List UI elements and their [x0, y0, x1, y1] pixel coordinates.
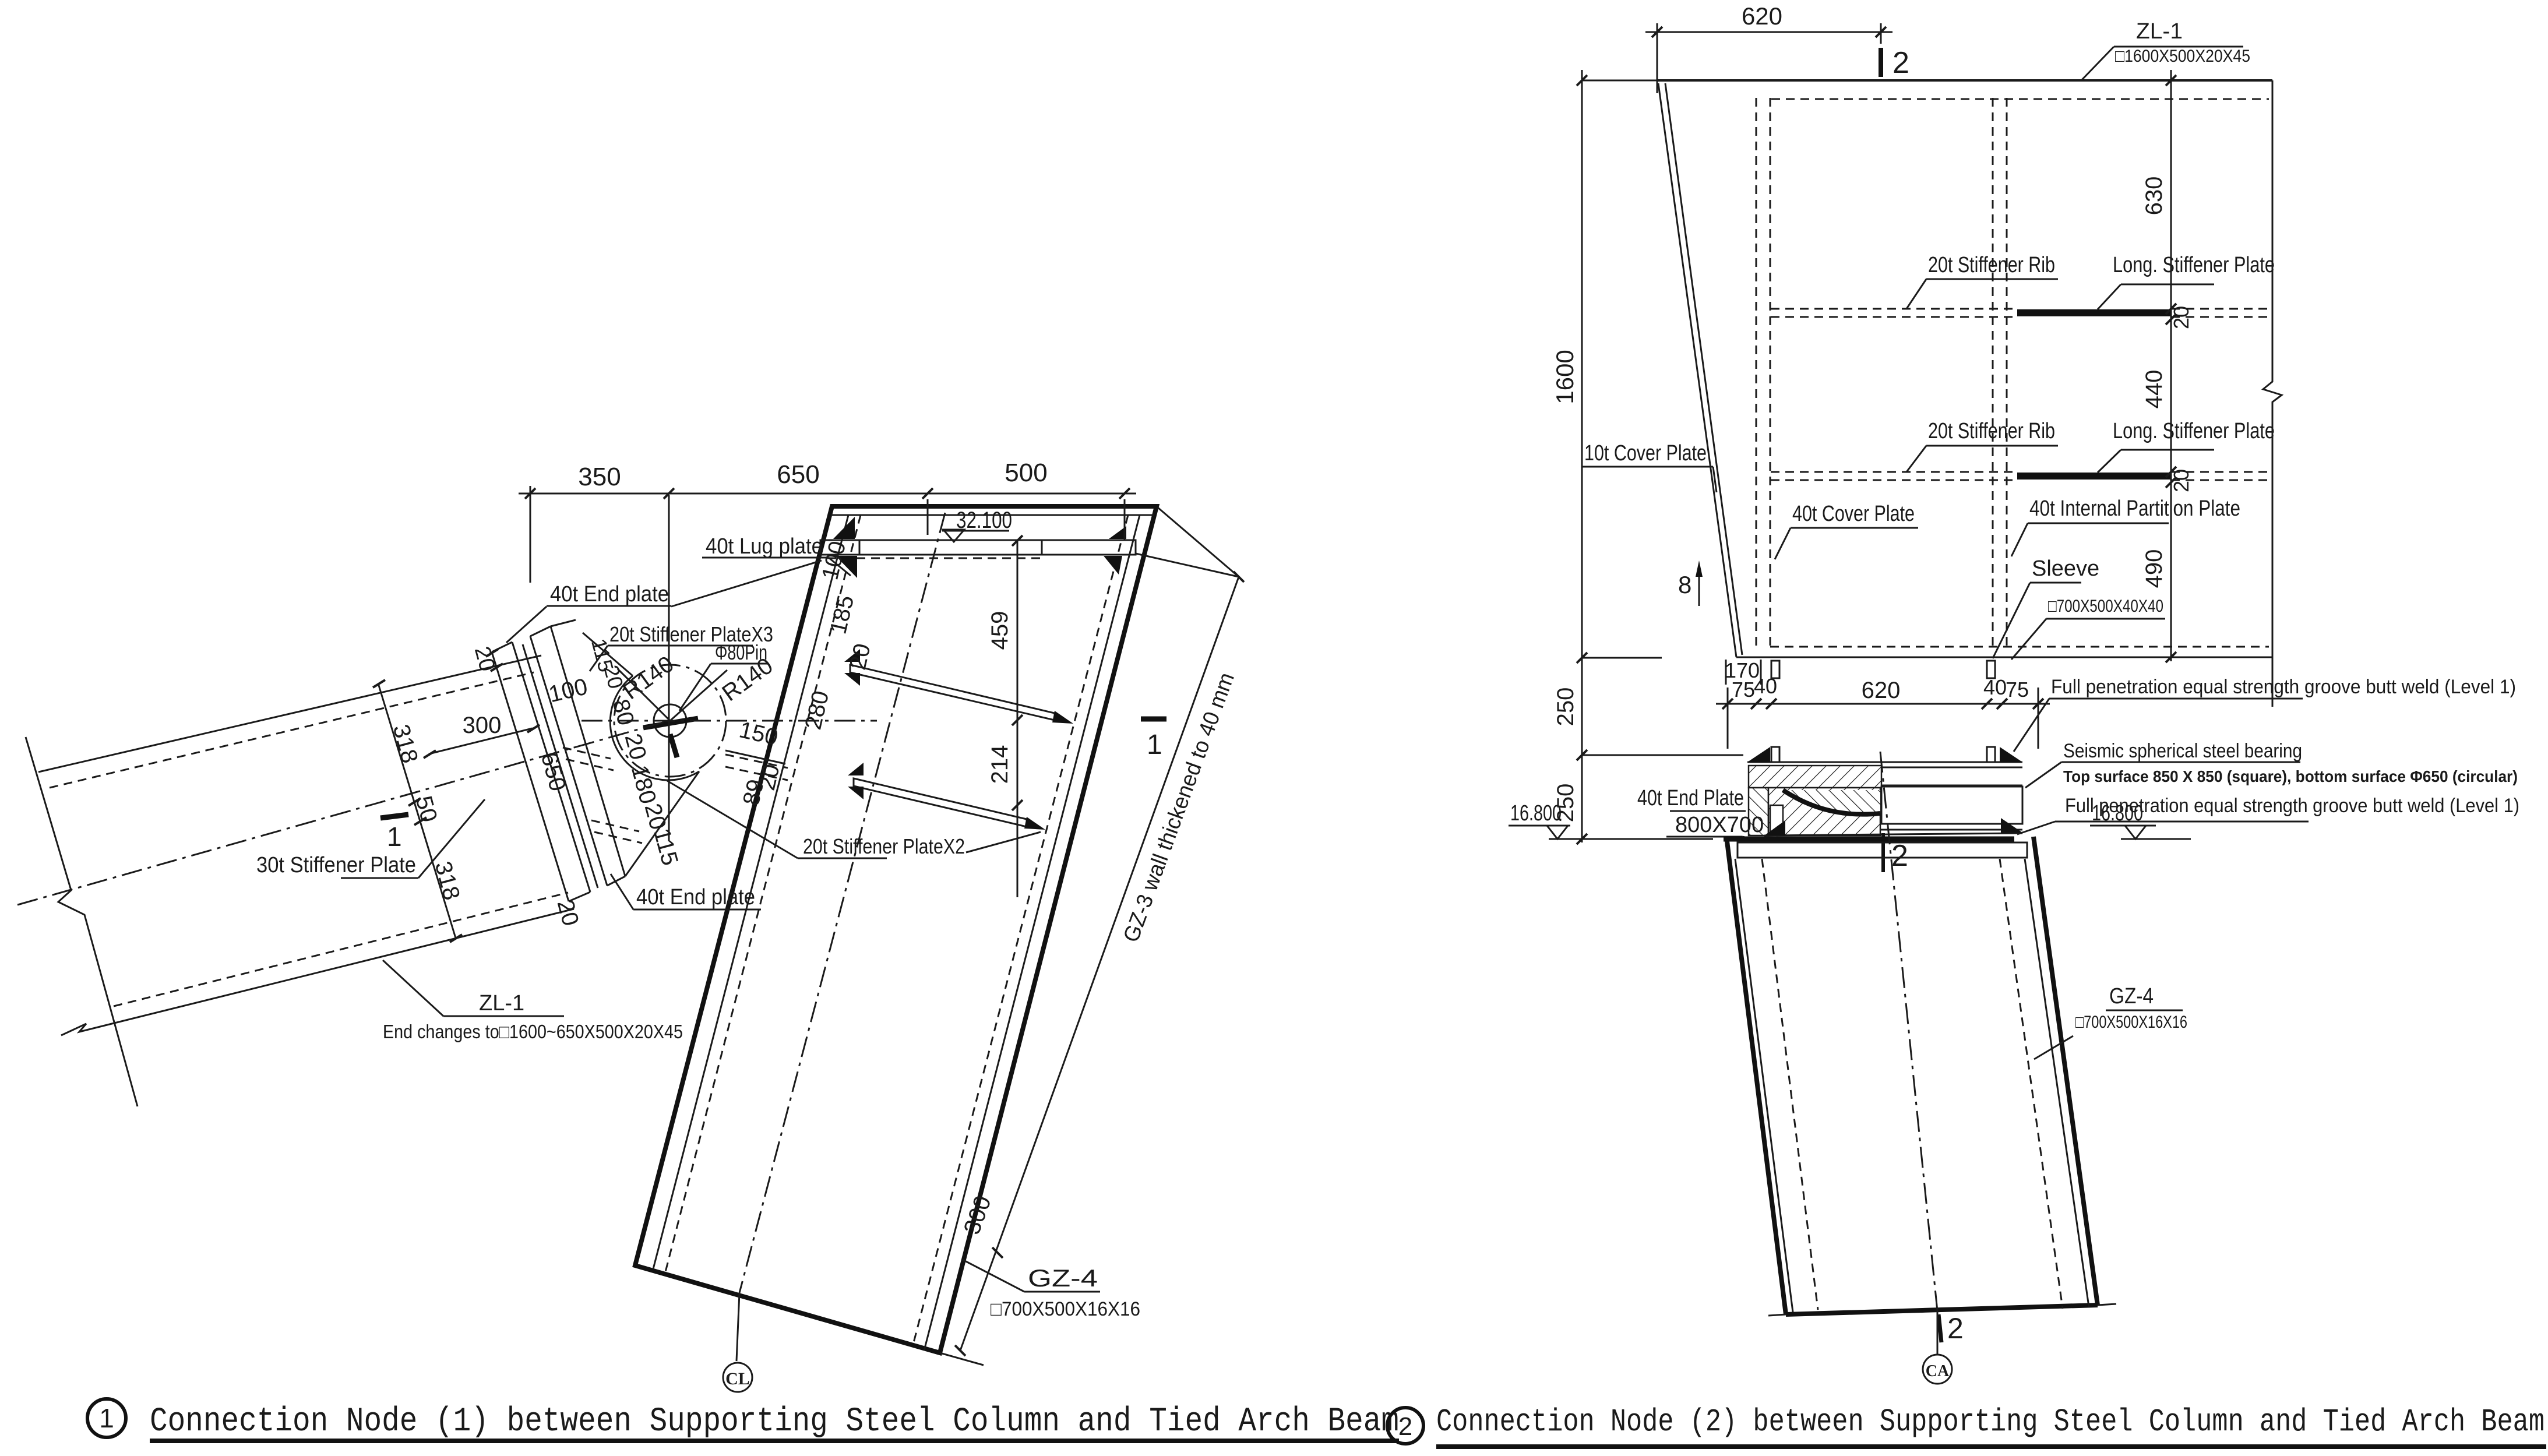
svg-text:Connection Node (1) between Su: Connection Node (1) between Supporting S…: [150, 1403, 1399, 1441]
svg-text:620: 620: [1742, 2, 1782, 30]
svg-text:490: 490: [2141, 549, 2167, 588]
svg-text:440: 440: [2141, 370, 2167, 409]
svg-text:Sleeve: Sleeve: [2032, 556, 2099, 581]
svg-text:1600: 1600: [1551, 350, 1578, 404]
svg-text:20: 20: [2169, 469, 2193, 492]
svg-text:Connection Node (2) between Su: Connection Node (2) between Supporting S…: [1436, 1404, 2545, 1440]
svg-text:□700X500X16X16: □700X500X16X16: [991, 1298, 1140, 1320]
svg-text:75: 75: [1732, 678, 1755, 701]
svg-text:650: 650: [777, 460, 819, 489]
svg-text:20t Stiffener PlateX2: 20t Stiffener PlateX2: [803, 834, 965, 858]
svg-text:Seismic spherical steel bearin: Seismic spherical steel bearing: [2063, 740, 2302, 762]
svg-text:500: 500: [1005, 459, 1047, 487]
svg-text:16.800: 16.800: [1510, 801, 1562, 826]
svg-text:8: 8: [1678, 571, 1691, 598]
svg-text:630: 630: [2141, 177, 2167, 216]
svg-text:40t Lug plate: 40t Lug plate: [706, 534, 823, 559]
svg-text:1: 1: [99, 1403, 114, 1433]
svg-text:Top surface 850 X 850 (square): Top surface 850 X 850 (square), bottom s…: [2063, 767, 2518, 785]
svg-text:75: 75: [2006, 678, 2029, 701]
svg-text:40t End plate: 40t End plate: [636, 885, 755, 909]
svg-text:459: 459: [987, 611, 1013, 650]
svg-text:40t End Plate: 40t End Plate: [1637, 786, 1744, 810]
svg-text:300: 300: [463, 713, 502, 738]
svg-text:1: 1: [387, 822, 402, 852]
svg-text:2: 2: [1893, 46, 1909, 80]
svg-text:Full penetration equal strengt: Full penetration equal strength groove b…: [2051, 676, 2516, 698]
svg-text:2: 2: [1398, 1412, 1412, 1441]
svg-text:620: 620: [1862, 678, 1901, 703]
svg-text:Long. Stiffener Plate: Long. Stiffener Plate: [2113, 253, 2275, 277]
svg-text:Full penetration equal strengt: Full penetration equal strength groove b…: [2065, 795, 2519, 817]
svg-text:40: 40: [1983, 675, 2007, 699]
svg-text:ZL-1: ZL-1: [479, 991, 524, 1016]
svg-text:GZ-4: GZ-4: [1028, 1264, 1098, 1292]
svg-text:2: 2: [1947, 1312, 1964, 1345]
svg-text:CL: CL: [725, 1369, 750, 1388]
svg-text:40: 40: [1754, 674, 1777, 698]
svg-text:1: 1: [1147, 729, 1162, 760]
svg-text:20t Stiffener Rib: 20t Stiffener Rib: [1928, 253, 2055, 277]
svg-text:30t Stiffener Plate: 30t Stiffener Plate: [256, 853, 416, 877]
svg-text:214: 214: [987, 745, 1013, 784]
svg-text:CA: CA: [1926, 1362, 1950, 1380]
svg-text:ZL-1: ZL-1: [2136, 19, 2183, 44]
svg-text:40t Cover Plate: 40t Cover Plate: [1792, 502, 1915, 526]
svg-text:□700X500X16X16: □700X500X16X16: [2075, 1013, 2187, 1032]
svg-text:350: 350: [578, 463, 621, 491]
svg-text:20: 20: [2169, 306, 2193, 329]
svg-text:20t Stiffener Rib: 20t Stiffener Rib: [1928, 419, 2055, 443]
svg-text:□1600X500X20X45: □1600X500X20X45: [2115, 47, 2250, 66]
svg-text:40t End plate: 40t End plate: [550, 582, 669, 607]
svg-text:250: 250: [1553, 688, 1578, 727]
svg-text:10t Cover Plate: 10t Cover Plate: [1584, 441, 1707, 466]
svg-text:End changes to□1600~650X500X20: End changes to□1600~650X500X20X45: [383, 1021, 683, 1042]
svg-text:GZ-4: GZ-4: [2109, 984, 2154, 1009]
svg-text:Long. Stiffener Plate: Long. Stiffener Plate: [2113, 419, 2275, 443]
svg-text:40t Internal Partition Plate: 40t Internal Partition Plate: [2029, 496, 2240, 521]
svg-text:□700X500X40X40: □700X500X40X40: [2048, 597, 2163, 616]
svg-text:2: 2: [1891, 839, 1908, 873]
svg-text:800X700: 800X700: [1675, 813, 1764, 837]
